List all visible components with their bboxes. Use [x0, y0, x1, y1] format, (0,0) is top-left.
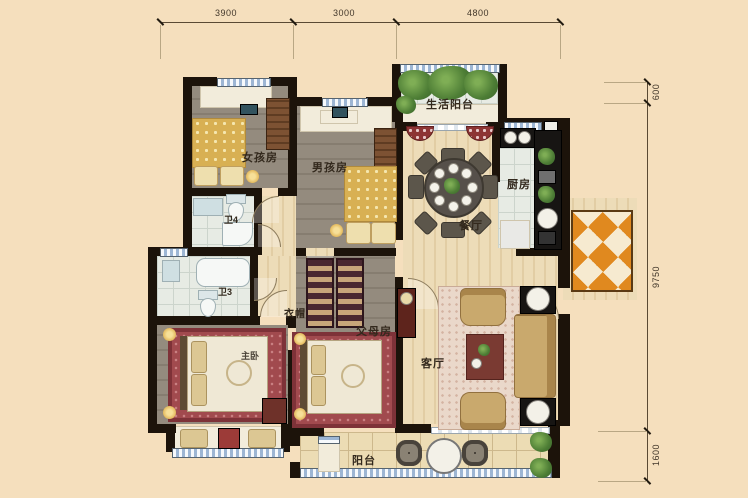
master-bed-ring — [226, 360, 252, 386]
label-boys-room: 男孩房 — [312, 159, 348, 175]
kitchen-fridge — [500, 220, 530, 249]
girls-lamp — [246, 170, 259, 183]
girls-desk-item — [240, 104, 258, 115]
label-parents: 父母房 — [356, 323, 392, 339]
master-baywindow — [172, 448, 284, 458]
stove-burner-2 — [518, 131, 531, 144]
girls-bay-niche — [200, 86, 272, 108]
master-lamp-1 — [163, 328, 176, 341]
label-bath4: 卫4 — [224, 213, 238, 226]
dim-top-4800: 4800 — [448, 8, 508, 18]
master-lamp-2 — [163, 406, 176, 419]
kitchen-appliance-2 — [538, 231, 556, 245]
bay-pillow-red — [218, 428, 240, 449]
balcony-chair-2 — [462, 440, 488, 466]
girls-window — [217, 78, 271, 87]
coffee-table — [466, 334, 504, 380]
boys-lamp — [330, 224, 343, 237]
entry-landing-tile — [571, 210, 633, 292]
armchair-top — [460, 288, 506, 326]
parents-lamp-2 — [294, 408, 306, 420]
label-svc-balcony: 生活阳台 — [426, 96, 474, 112]
master-pillow-1 — [191, 341, 207, 373]
bath3-sink — [162, 260, 180, 282]
label-balcony: 阳台 — [352, 452, 376, 468]
master-dresser — [262, 398, 287, 424]
balcony-plant-1 — [530, 432, 552, 452]
bath4-sink — [193, 198, 223, 216]
bath3-window — [160, 248, 188, 257]
clock-face — [400, 292, 413, 305]
balcony-chair-1 — [396, 440, 422, 466]
girls-wardrobe — [266, 98, 290, 150]
label-bath3: 卫3 — [218, 285, 232, 298]
label-girls-room: 女孩房 — [242, 149, 278, 165]
bay-pillow-1 — [180, 429, 208, 448]
parents-bed-ring — [341, 364, 365, 388]
cloak-shelf-2 — [336, 258, 364, 328]
label-dining: 餐厅 — [459, 217, 483, 233]
kitchen-sink — [537, 208, 558, 229]
dim-top-3900: 3900 — [196, 8, 256, 18]
parents-pillow-2 — [311, 376, 326, 406]
stove-burner-1 — [504, 131, 517, 144]
coffee-table-dish — [471, 358, 482, 369]
label-kitchen: 厨房 — [507, 176, 531, 192]
armchair-bottom — [460, 392, 506, 430]
parents-headboard — [300, 340, 307, 412]
boys-window — [322, 98, 368, 107]
svc-plant-4 — [396, 96, 416, 114]
kitchen-small-appliance — [538, 170, 556, 184]
boys-bed — [344, 166, 397, 222]
boys-desk-item — [332, 107, 348, 118]
bay-pillow-2 — [248, 429, 276, 448]
side-table-bottom-dish — [526, 400, 550, 424]
label-master: 主卧 — [241, 349, 259, 362]
master-pillow-2 — [191, 374, 207, 406]
girls-pillow-1 — [194, 166, 218, 186]
balcony-table — [426, 438, 462, 474]
floor-plan-page: { "plan": { "type": "apartment-floor-pla… — [0, 0, 748, 498]
parents-pillow-1 — [311, 345, 326, 375]
coffee-table-flowers — [478, 344, 490, 356]
kitchen-plant-2 — [538, 186, 555, 203]
boys-pillow-1 — [346, 222, 371, 244]
girls-bed — [192, 118, 246, 168]
dining-chair-e — [482, 175, 498, 199]
girls-pillow-2 — [220, 166, 244, 186]
dim-right-9750: 9750 — [651, 257, 661, 297]
living-sofa — [514, 314, 556, 398]
parents-lamp-1 — [294, 333, 306, 345]
balcony-cabinet-top — [318, 436, 340, 444]
label-cloakroom: 衣帽 — [284, 305, 306, 320]
boys-pillow-2 — [371, 222, 396, 244]
balcony-plant-2 — [530, 458, 552, 478]
dim-top-3000: 3000 — [314, 8, 374, 18]
label-living: 客厅 — [421, 355, 445, 371]
side-table-top-dish — [526, 287, 550, 311]
dining-chair-w — [408, 175, 424, 199]
dining-centerpiece — [444, 178, 460, 194]
dim-right-1600: 1600 — [651, 435, 661, 475]
bath3-tub — [196, 258, 250, 287]
dim-right-600: 600 — [651, 74, 661, 110]
kitchen-plant-1 — [538, 148, 555, 165]
cloak-shelf-1 — [306, 258, 334, 328]
master-headboard — [180, 336, 187, 410]
